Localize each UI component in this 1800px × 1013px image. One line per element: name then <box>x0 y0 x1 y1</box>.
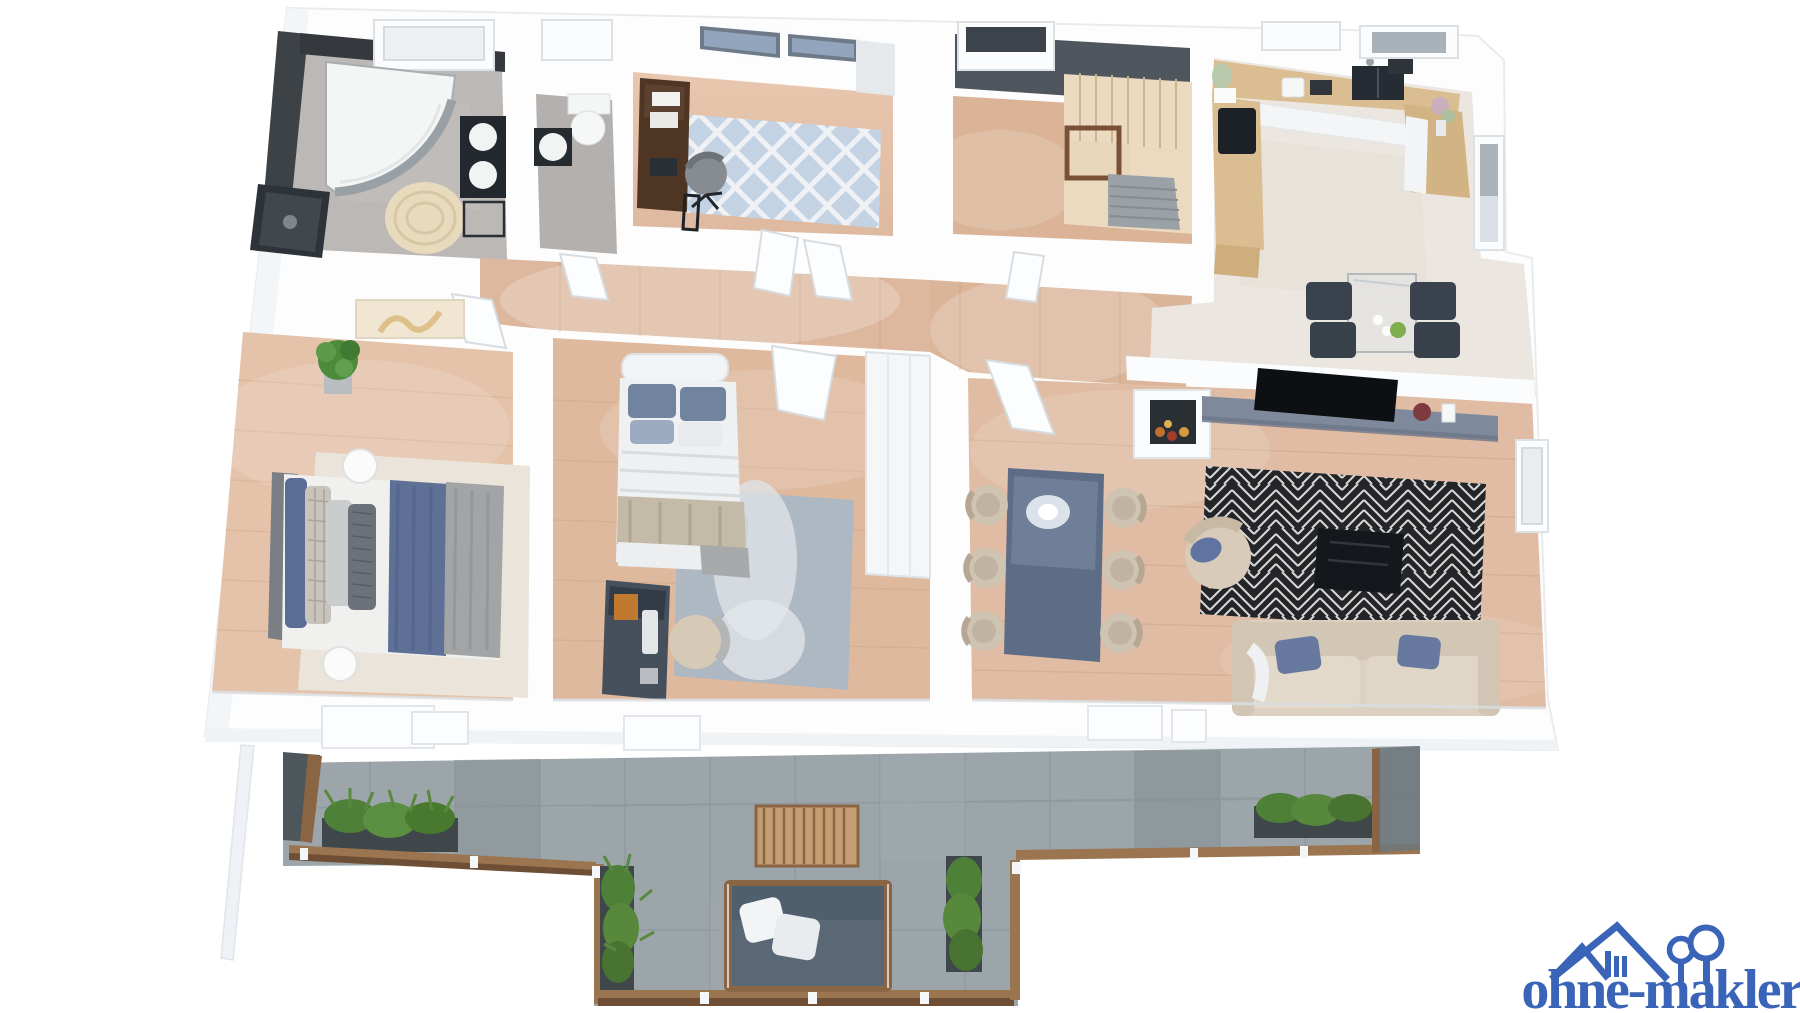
svg-text:ohne-makler: ohne-makler <box>1521 959 1800 1013</box>
